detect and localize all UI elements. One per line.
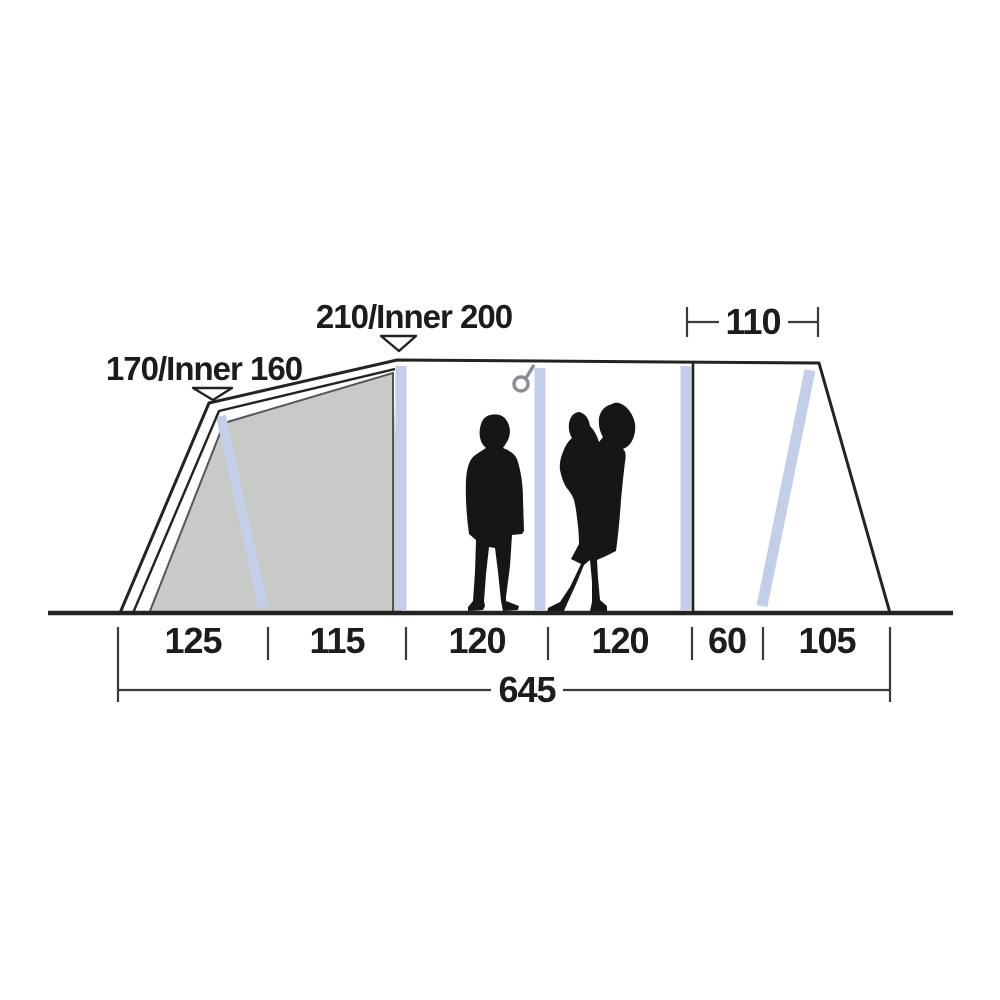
hanging-hook-icon	[514, 365, 534, 391]
diagram-canvas: 170/Inner 160 210/Inner 200 110 125	[0, 0, 1000, 1000]
section-width-label: 105	[798, 620, 856, 661]
total-length-label: 645	[498, 669, 556, 710]
pole-slanted-right	[762, 370, 810, 606]
total-length-annotation: 645	[118, 669, 890, 710]
section-width-label: 125	[164, 620, 222, 661]
section-width-label: 60	[708, 620, 746, 661]
canopy-width-label: 110	[725, 301, 780, 342]
canopy-width-annotation: 110	[687, 301, 818, 342]
tent-dimension-diagram: 170/Inner 160 210/Inner 200 110 125	[0, 0, 1000, 1000]
down-arrow-icon	[381, 336, 416, 351]
section-width-label: 120	[591, 620, 648, 661]
adult-with-child-silhouette	[547, 403, 635, 613]
ridge-height-label: 210/Inner 200	[316, 298, 512, 335]
left-height-label: 170/Inner 160	[106, 350, 302, 387]
adult-silhouette	[466, 414, 524, 611]
section-width-label: 120	[448, 620, 505, 661]
section-width-label: 115	[309, 620, 365, 661]
height-annotations: 170/Inner 160 210/Inner 200	[106, 298, 512, 400]
scale-figures	[466, 403, 635, 613]
inner-tent-panel	[150, 373, 402, 611]
